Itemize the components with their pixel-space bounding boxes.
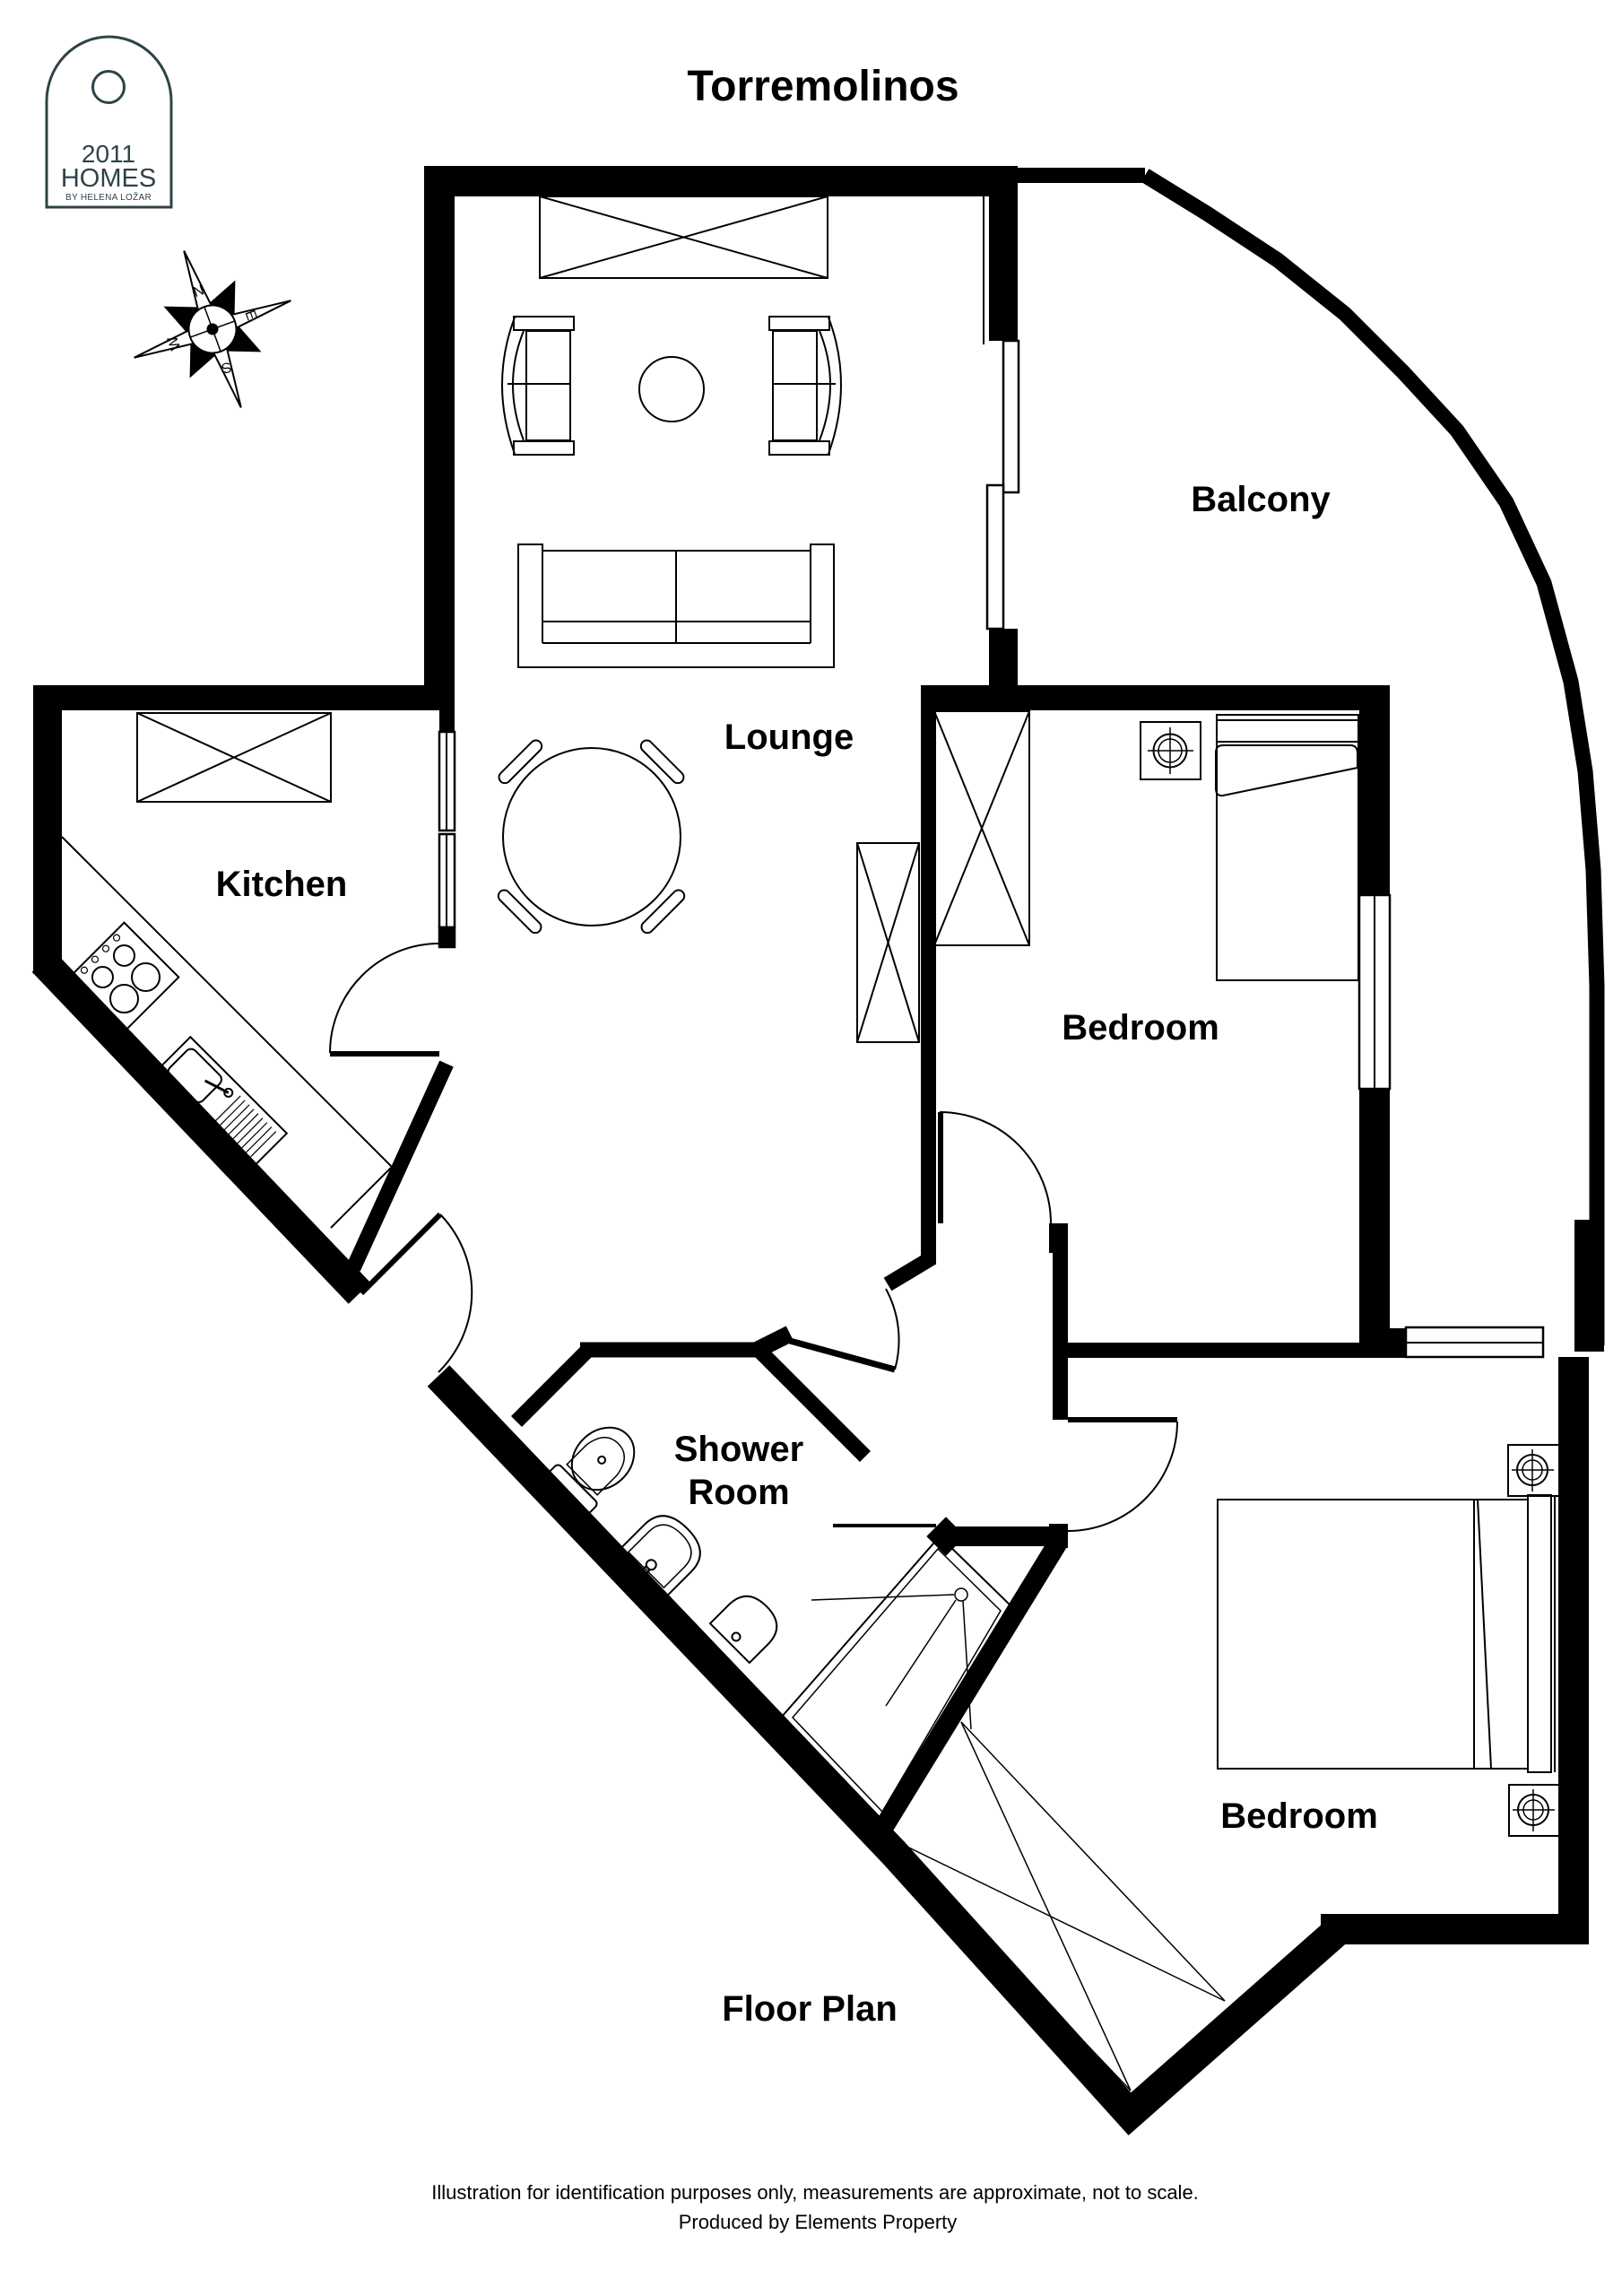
svg-text:Floor Plan: Floor Plan: [722, 1989, 898, 2029]
svg-text:Kitchen: Kitchen: [216, 865, 348, 904]
svg-text:Balcony: Balcony: [1191, 480, 1331, 519]
svg-text:Produced by Elements Property: Produced by Elements Property: [679, 2211, 958, 2233]
svg-text:Bedroom: Bedroom: [1220, 1796, 1378, 1836]
svg-text:HOMES: HOMES: [61, 164, 156, 193]
svg-text:Illustration for identificatio: Illustration for identification purposes…: [431, 2181, 1199, 2204]
svg-text:Room: Room: [688, 1473, 789, 1512]
svg-text:Torremolinos: Torremolinos: [687, 63, 958, 110]
svg-text:BY HELENA LOŽAR: BY HELENA LOŽAR: [65, 191, 152, 203]
svg-text:Lounge: Lounge: [724, 717, 854, 757]
svg-text:Bedroom: Bedroom: [1062, 1008, 1219, 1048]
svg-text:Shower: Shower: [674, 1430, 803, 1469]
